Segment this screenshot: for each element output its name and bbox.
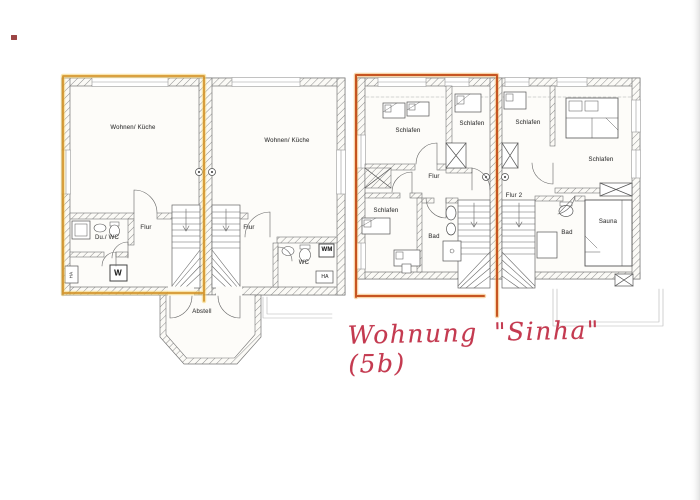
upper-floor-plan <box>357 78 664 327</box>
staircase-left-unit <box>172 205 200 288</box>
red-corner-mark <box>11 35 17 40</box>
floor-plan-drawing <box>0 0 700 500</box>
staircase-upper-right <box>502 200 535 288</box>
scan-edge-shadow <box>690 0 700 500</box>
storage-bay <box>160 287 261 365</box>
scanned-floor-plan-sheet: Wohnen/ Küche Wohnen/ Küche Flur Flur Du… <box>0 0 700 500</box>
handwritten-apartment-annotation: Wohnung "Sinha" (5b) <box>347 315 608 378</box>
staircase-upper-left <box>458 200 490 288</box>
terrace-line-ground <box>263 297 332 318</box>
staircase-right-unit <box>212 205 240 288</box>
